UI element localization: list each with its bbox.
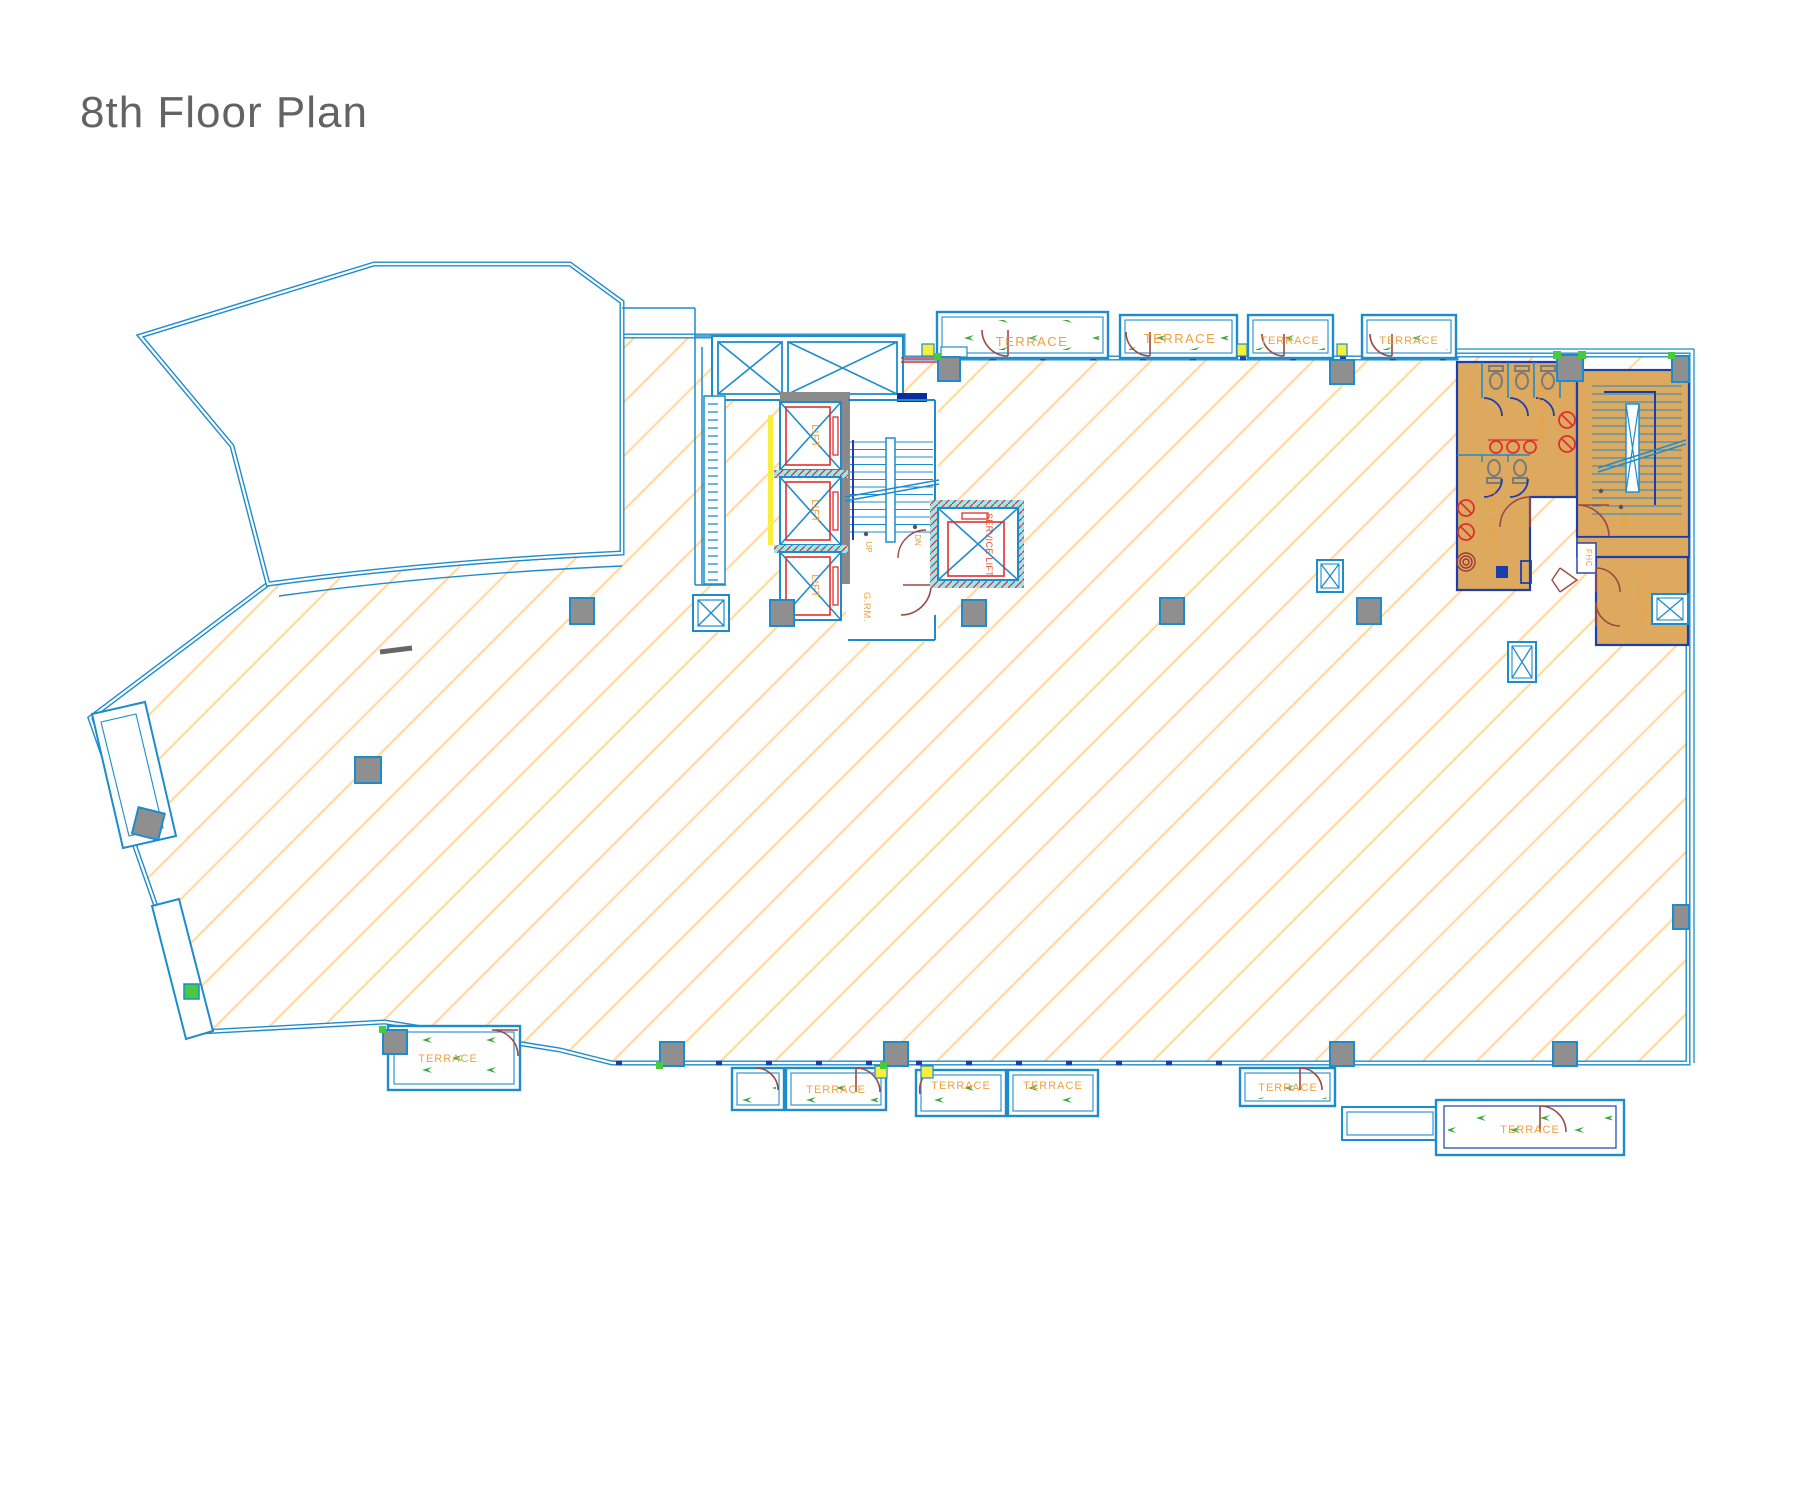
up-label: UP bbox=[1619, 515, 1628, 526]
green-corner-block bbox=[184, 984, 199, 999]
terrace-label: TERRACE bbox=[418, 1053, 478, 1065]
page-title: 8th Floor Plan bbox=[80, 88, 368, 138]
service-lift-label: SERVICE LIFT bbox=[984, 513, 994, 577]
column bbox=[132, 807, 165, 840]
lift-shaft-1: LIFT bbox=[780, 402, 841, 470]
lift-label: LIFT bbox=[809, 499, 821, 523]
core-wall bbox=[780, 392, 848, 402]
terrace-label: TERRACE bbox=[806, 1084, 866, 1096]
floor-plan-drawing: TERRACE TERRACE TERRACE TERRACE bbox=[0, 0, 1800, 1509]
fhc-label: FHC bbox=[1584, 549, 1593, 567]
dn-label: DN bbox=[913, 534, 922, 546]
terrace-label: TERRACE bbox=[1379, 335, 1439, 347]
male-toilet-label: MALE TOILET bbox=[1536, 386, 1546, 446]
terrace-top-4: TERRACE bbox=[1362, 315, 1456, 358]
terrace-label: TERRACE bbox=[1500, 1124, 1560, 1136]
lift-label: LIFT bbox=[809, 424, 821, 448]
wall-nib bbox=[941, 347, 967, 357]
column bbox=[938, 357, 960, 381]
shaft-box bbox=[1508, 642, 1536, 682]
column bbox=[770, 600, 794, 626]
terrace-bottom-5: TERRACE bbox=[1008, 1070, 1098, 1116]
column bbox=[884, 1042, 908, 1066]
column bbox=[1673, 905, 1689, 929]
column bbox=[1672, 356, 1689, 382]
terrace-top-3: TERRACE bbox=[1248, 315, 1333, 358]
wall-junction-accent bbox=[1237, 344, 1247, 356]
terrace-label: TERRACE bbox=[996, 334, 1069, 349]
garbage-room-label: G.RM. bbox=[861, 592, 872, 622]
column bbox=[1160, 598, 1184, 624]
wall-junction-accent bbox=[922, 344, 934, 356]
column bbox=[383, 1030, 407, 1054]
core-top-shafts bbox=[712, 336, 903, 400]
wall-junction-accent bbox=[1337, 344, 1347, 356]
wall-junction-accent bbox=[921, 1066, 933, 1078]
yellow-wall-strip bbox=[768, 415, 773, 545]
terrace-label: TERRACE bbox=[931, 1080, 991, 1092]
shaft-block bbox=[1496, 566, 1508, 578]
terrace-label: TERRACE bbox=[1260, 335, 1320, 347]
column bbox=[1357, 598, 1381, 624]
terrace-bottom-3: TERRACE bbox=[786, 1068, 886, 1110]
shaft-box bbox=[1652, 594, 1688, 624]
female-toilet-label: FEMALE TOILET bbox=[1487, 484, 1497, 556]
terrace-label: TERRACE bbox=[1258, 1082, 1318, 1094]
page: 8th Floor Plan bbox=[0, 0, 1800, 1509]
column bbox=[1330, 1042, 1354, 1066]
terrace-top-2: TERRACE bbox=[1120, 315, 1237, 358]
shaft-box bbox=[693, 595, 729, 631]
terrace-label: TERRACE bbox=[1144, 331, 1217, 346]
terrace-bottom-6: TERRACE bbox=[1240, 1068, 1335, 1106]
terrace-bottom-step bbox=[1342, 1107, 1438, 1140]
louver-strip bbox=[704, 396, 725, 584]
column bbox=[570, 598, 594, 624]
terrace-label: TERRACE bbox=[1023, 1080, 1083, 1092]
janitor-closet-label: J.C. bbox=[1466, 382, 1475, 398]
service-lift: SERVICE LIFT bbox=[930, 500, 1024, 588]
core-wall bbox=[841, 392, 850, 584]
column bbox=[962, 600, 986, 626]
elec-room-label: ELEC. RM. bbox=[1636, 572, 1647, 624]
column bbox=[660, 1042, 684, 1066]
terrace-bottom-7: TERRACE bbox=[1436, 1100, 1624, 1155]
right-stairs: DN UP bbox=[1577, 370, 1689, 537]
up-label: UP bbox=[864, 541, 873, 552]
lift-shaft-2: LIFT bbox=[780, 477, 841, 545]
column bbox=[1330, 360, 1354, 384]
terrace-bottom-2 bbox=[732, 1068, 784, 1110]
shaft-box bbox=[1317, 560, 1343, 592]
lift-label: LIFT bbox=[809, 574, 821, 598]
upper-left-roof-outline bbox=[140, 264, 622, 584]
column bbox=[1553, 1042, 1577, 1066]
column bbox=[355, 757, 381, 783]
